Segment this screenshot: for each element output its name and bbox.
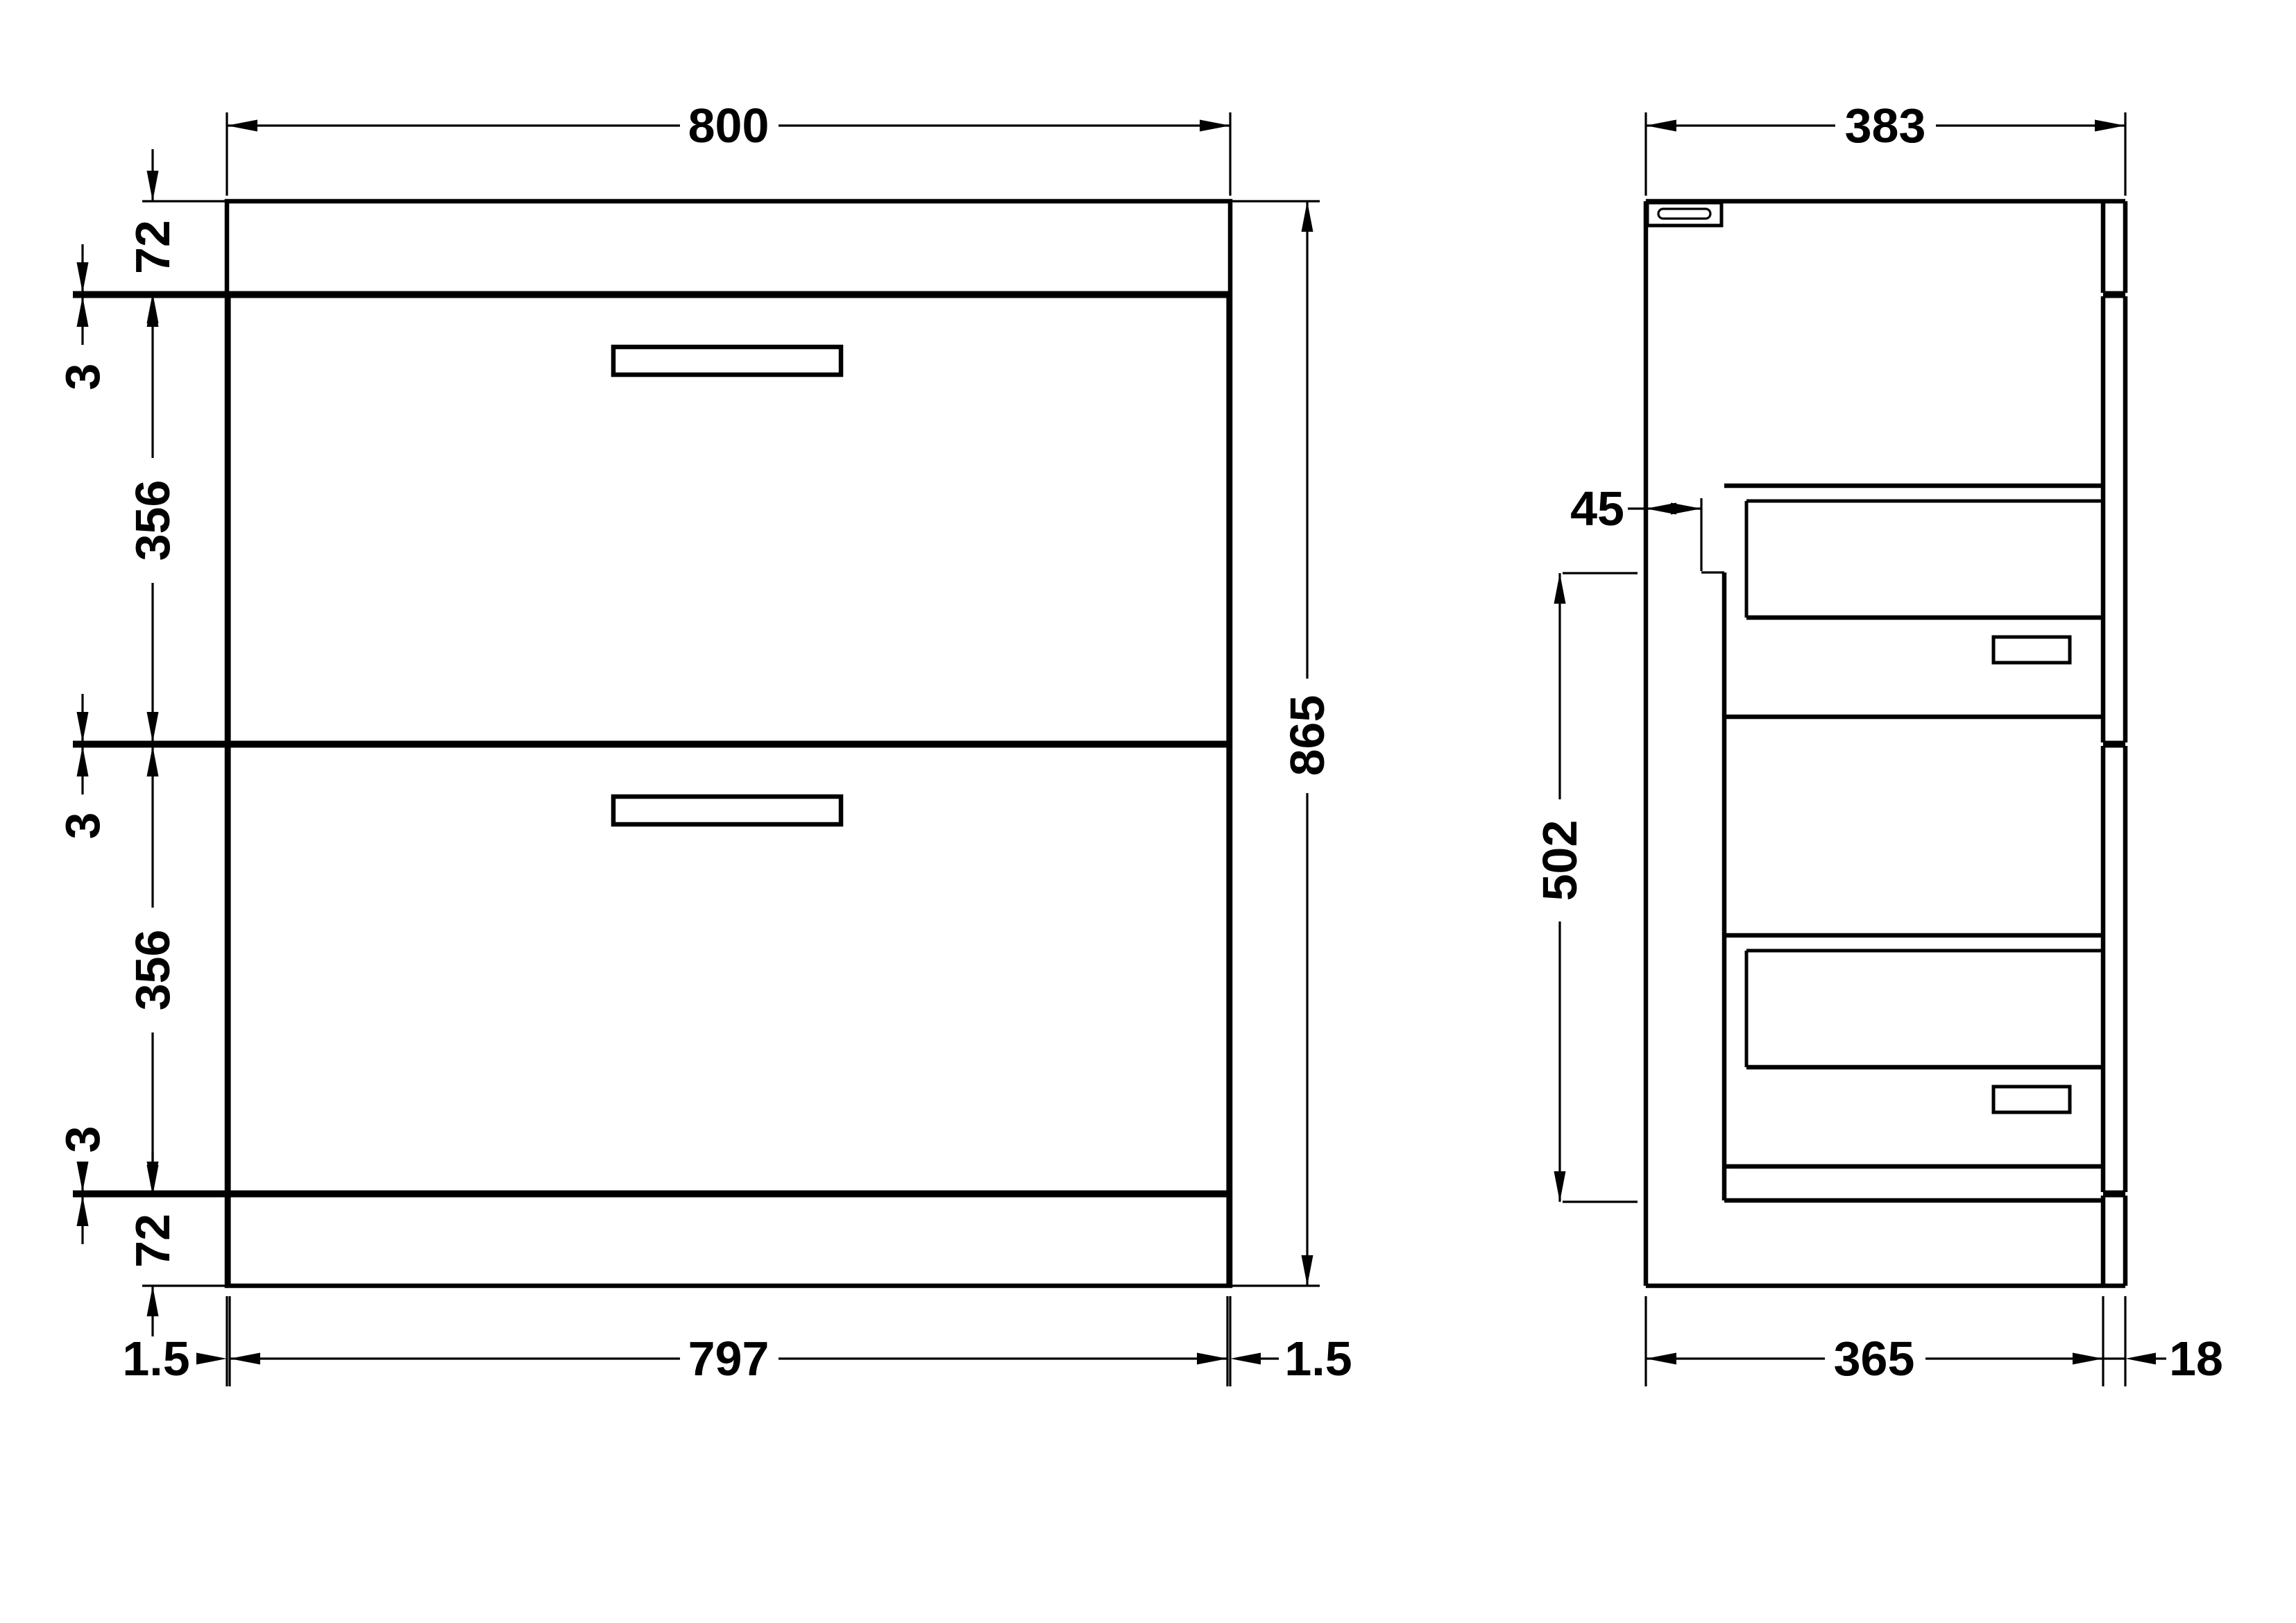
dim-side-depth: 383: [1646, 99, 2125, 196]
side-view: [1646, 201, 2125, 1286]
dim-front-bottom: 1.5 797 1.5: [122, 1296, 1352, 1386]
drawing-page: 800 865 72 3 356 3: [0, 0, 2296, 1623]
front-drawer1-handle: [613, 347, 841, 375]
front-gap-mid-label: 3: [56, 813, 110, 840]
front-view: [73, 201, 1230, 1286]
front-bottom-rail-label: 72: [126, 1214, 180, 1268]
drawer2-runner-block: [1993, 1087, 2070, 1112]
dim-side-internal-height: 502: [1533, 573, 1638, 1202]
side-front-gap-ticks: [2103, 293, 2125, 1196]
drawer1-runner-block: [1993, 637, 2070, 663]
side-internal-height-label: 502: [1533, 820, 1587, 901]
side-carcass-depth-label: 365: [1834, 1332, 1915, 1386]
dim-front-width: 800: [227, 99, 1230, 196]
dim-front-height: 865: [1230, 201, 1334, 1286]
front-gap-top-label: 3: [56, 364, 110, 391]
front-drawer2-label: 356: [126, 930, 180, 1011]
front-inset-left-label: 1.5: [122, 1332, 189, 1386]
wall-bracket-slot: [1658, 209, 1710, 219]
front-drawer2-handle: [613, 797, 841, 824]
side-back-clearance-label: 45: [1570, 482, 1624, 536]
technical-drawing-canvas: 800 865 72 3 356 3: [0, 0, 2296, 1623]
front-carcass-width-label: 797: [688, 1332, 769, 1386]
front-width-label: 800: [688, 99, 769, 153]
dim-side-bottom: 365 18: [1646, 1296, 2223, 1386]
side-depth-label: 383: [1845, 99, 1926, 153]
front-gap-bot-label: 3: [56, 1126, 110, 1153]
front-inset-right-label: 1.5: [1284, 1332, 1352, 1386]
side-front-thickness-label: 18: [2169, 1332, 2223, 1386]
front-height-label: 865: [1280, 695, 1334, 776]
dim-side-back-clearance: 45: [1570, 482, 1701, 536]
front-top-rail-label: 72: [126, 220, 180, 274]
front-drawer1-label: 356: [126, 480, 180, 561]
